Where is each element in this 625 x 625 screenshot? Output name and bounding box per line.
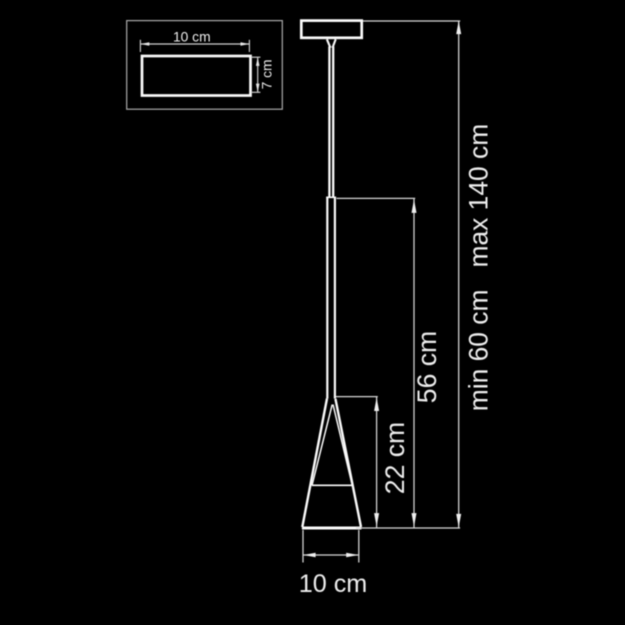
svg-text:7 cm: 7 cm [259,59,274,89]
svg-text:10 cm: 10 cm [173,30,211,45]
svg-text:22 cm: 22 cm [380,422,410,494]
svg-text:10 cm: 10 cm [299,570,368,598]
svg-text:min 60 cm max 140 cm: min 60 cm max 140 cm [464,124,494,411]
svg-text:56 cm: 56 cm [412,331,442,403]
